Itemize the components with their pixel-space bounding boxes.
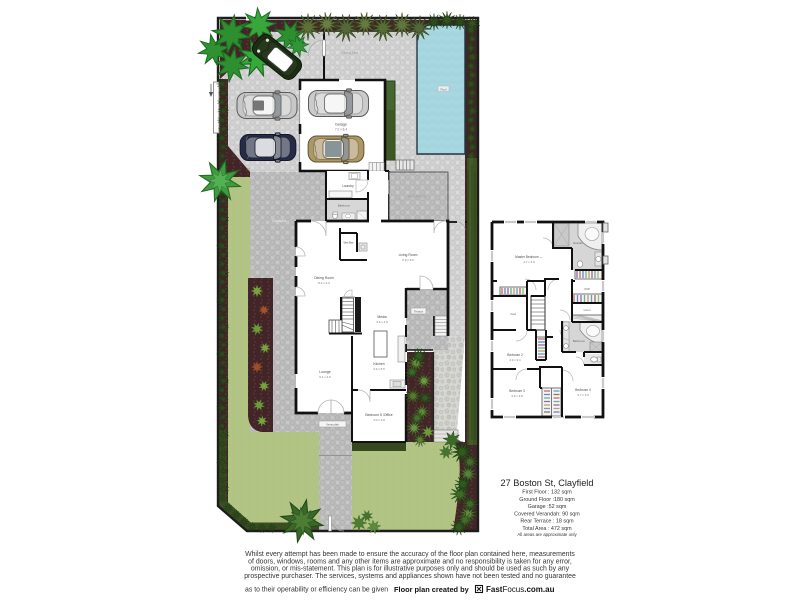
svg-text:FastFocus.com.au: FastFocus.com.au [486, 585, 555, 594]
svg-text:27 Boston St, Clayfield: 27 Boston St, Clayfield [501, 478, 594, 488]
svg-text:Bedroom 5 /Office: Bedroom 5 /Office [365, 413, 392, 417]
svg-text:4.7 x 4.9: 4.7 x 4.9 [523, 260, 535, 264]
svg-text:First Floor : 132 sqm: First Floor : 132 sqm [522, 490, 572, 496]
svg-text:4.0 x 3.8: 4.0 x 3.8 [373, 418, 385, 422]
svg-text:7.0 x 8.4: 7.0 x 8.4 [335, 128, 347, 132]
svg-text:3.6 x 4.9: 3.6 x 4.9 [376, 320, 388, 324]
svg-text:Dining Room: Dining Room [314, 276, 334, 280]
svg-text:of doors, windows, rooms and a: of doors, windows, rooms and any other i… [248, 558, 572, 565]
svg-text:8.4 x 3.3: 8.4 x 3.3 [318, 281, 330, 285]
svg-text:Lounge: Lounge [319, 370, 330, 374]
svg-text:Laundry: Laundry [342, 184, 354, 188]
svg-text:Garage :52 sqm: Garage :52 sqm [528, 504, 567, 510]
svg-text:Rear Terrace : 18 sqm: Rear Terrace : 18 sqm [520, 519, 574, 525]
svg-text:3.9 x 3.8: 3.9 x 3.8 [511, 394, 523, 398]
svg-text:omission, or mis-statement. Th: omission, or mis-statement. This plan is… [251, 566, 570, 573]
svg-text:Garage: Garage [335, 123, 347, 127]
svg-text:Drying Area: Drying Area [342, 51, 359, 55]
svg-text:Floor plan created by: Floor plan created by [394, 585, 470, 594]
svg-text:Rear Terrace: Rear Terrace [408, 195, 427, 199]
svg-text:3.9 x 5.5: 3.9 x 5.5 [373, 367, 385, 371]
svg-text:Linen: Linen [584, 308, 591, 312]
svg-text:as to their operability or eff: as to their operability or efficiency ca… [245, 587, 388, 594]
svg-text:Bathroom: Bathroom [338, 204, 351, 208]
svg-text:Bathroom: Bathroom [573, 339, 586, 343]
svg-text:Pool: Pool [440, 87, 446, 91]
svg-text:prospective purchaser. The ser: prospective purchaser. The services, sys… [244, 573, 576, 580]
svg-text:3.9 x 3.1: 3.9 x 3.1 [509, 358, 521, 362]
svg-text:6.9 x 9.9: 6.9 x 9.9 [402, 258, 414, 262]
svg-text:WIR: WIR [584, 287, 589, 291]
svg-text:Void: Void [510, 312, 516, 316]
svg-text:Covered Verandah: 90 sqm: Covered Verandah: 90 sqm [514, 511, 580, 517]
svg-text:Living Room: Living Room [399, 253, 418, 257]
svg-text:Verandah: Verandah [326, 423, 339, 427]
svg-text:Master Bedroom ↔: Master Bedroom ↔ [515, 255, 543, 259]
svg-text:Terrace: Terrace [414, 310, 424, 314]
svg-text:All areas are approximate only: All areas are approximate only [517, 532, 577, 537]
svg-text:Bedroom 4: Bedroom 4 [575, 388, 591, 392]
svg-text:Kitchen: Kitchen [373, 362, 384, 366]
svg-text:3.7 x 3.9: 3.7 x 3.9 [577, 393, 589, 397]
svg-text:Ground Floor :180 sqm: Ground Floor :180 sqm [519, 497, 575, 503]
svg-text:Media: Media [377, 315, 386, 319]
svg-text:6.1 x 4.6: 6.1 x 4.6 [319, 375, 331, 379]
svg-text:Courtyard: Courtyard [272, 219, 286, 223]
svg-text:Bedroom 2: Bedroom 2 [507, 353, 523, 357]
svg-text:Whilst every attempt has been: Whilst every attempt has been made to en… [245, 551, 575, 558]
svg-text:Bedroom 3: Bedroom 3 [509, 389, 525, 393]
svg-text:Wet Bar: Wet Bar [343, 241, 353, 245]
